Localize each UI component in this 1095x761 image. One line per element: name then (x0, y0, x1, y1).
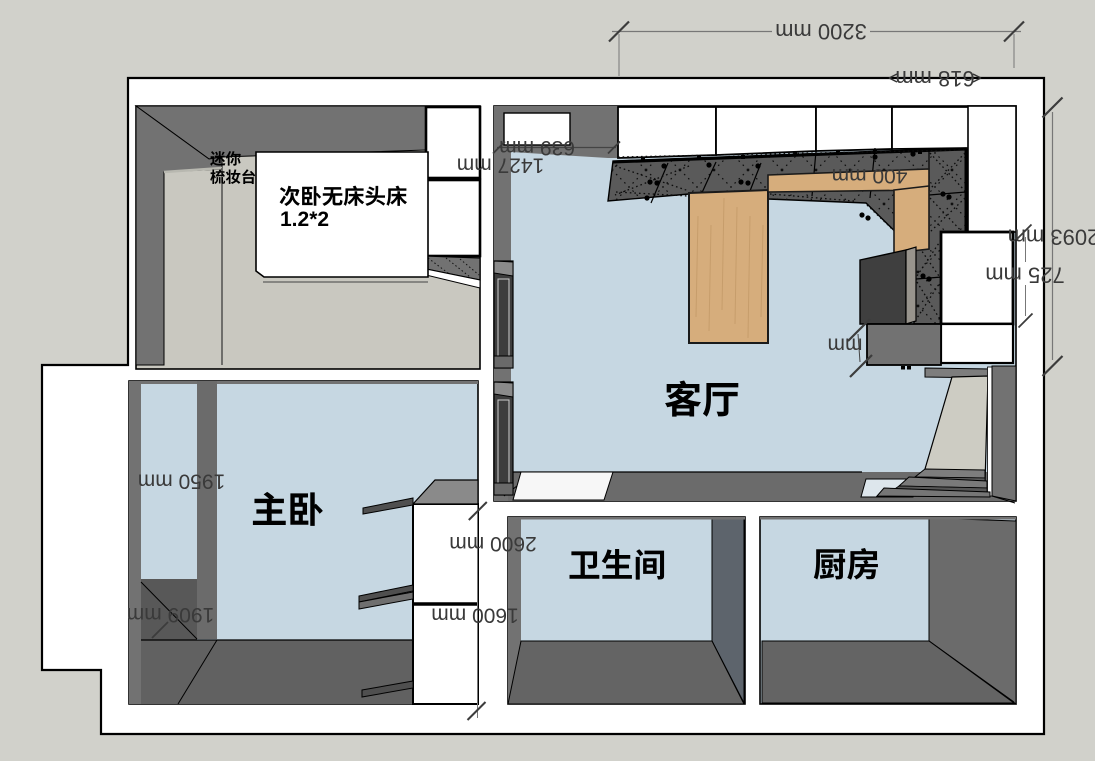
svg-text:400 mm: 400 mm (832, 164, 908, 187)
svg-text:2093 mm: 2093 mm (1008, 225, 1095, 250)
svg-text:1.2*2: 1.2*2 (280, 208, 329, 231)
svg-text:2600 mm: 2600 mm (449, 532, 537, 555)
svg-text:1600 mm: 1600 mm (431, 603, 519, 626)
svg-text:618 mm: 618 mm (895, 66, 974, 91)
svg-text:1950 mm: 1950 mm (138, 469, 226, 492)
svg-text:725 mm: 725 mm (985, 263, 1064, 288)
svg-text:1427 mm: 1427 mm (457, 153, 545, 176)
svg-text:1909 mm: 1909 mm (127, 603, 215, 626)
svg-text:mm: mm (828, 333, 863, 356)
svg-text:3200 mm: 3200 mm (775, 19, 867, 44)
